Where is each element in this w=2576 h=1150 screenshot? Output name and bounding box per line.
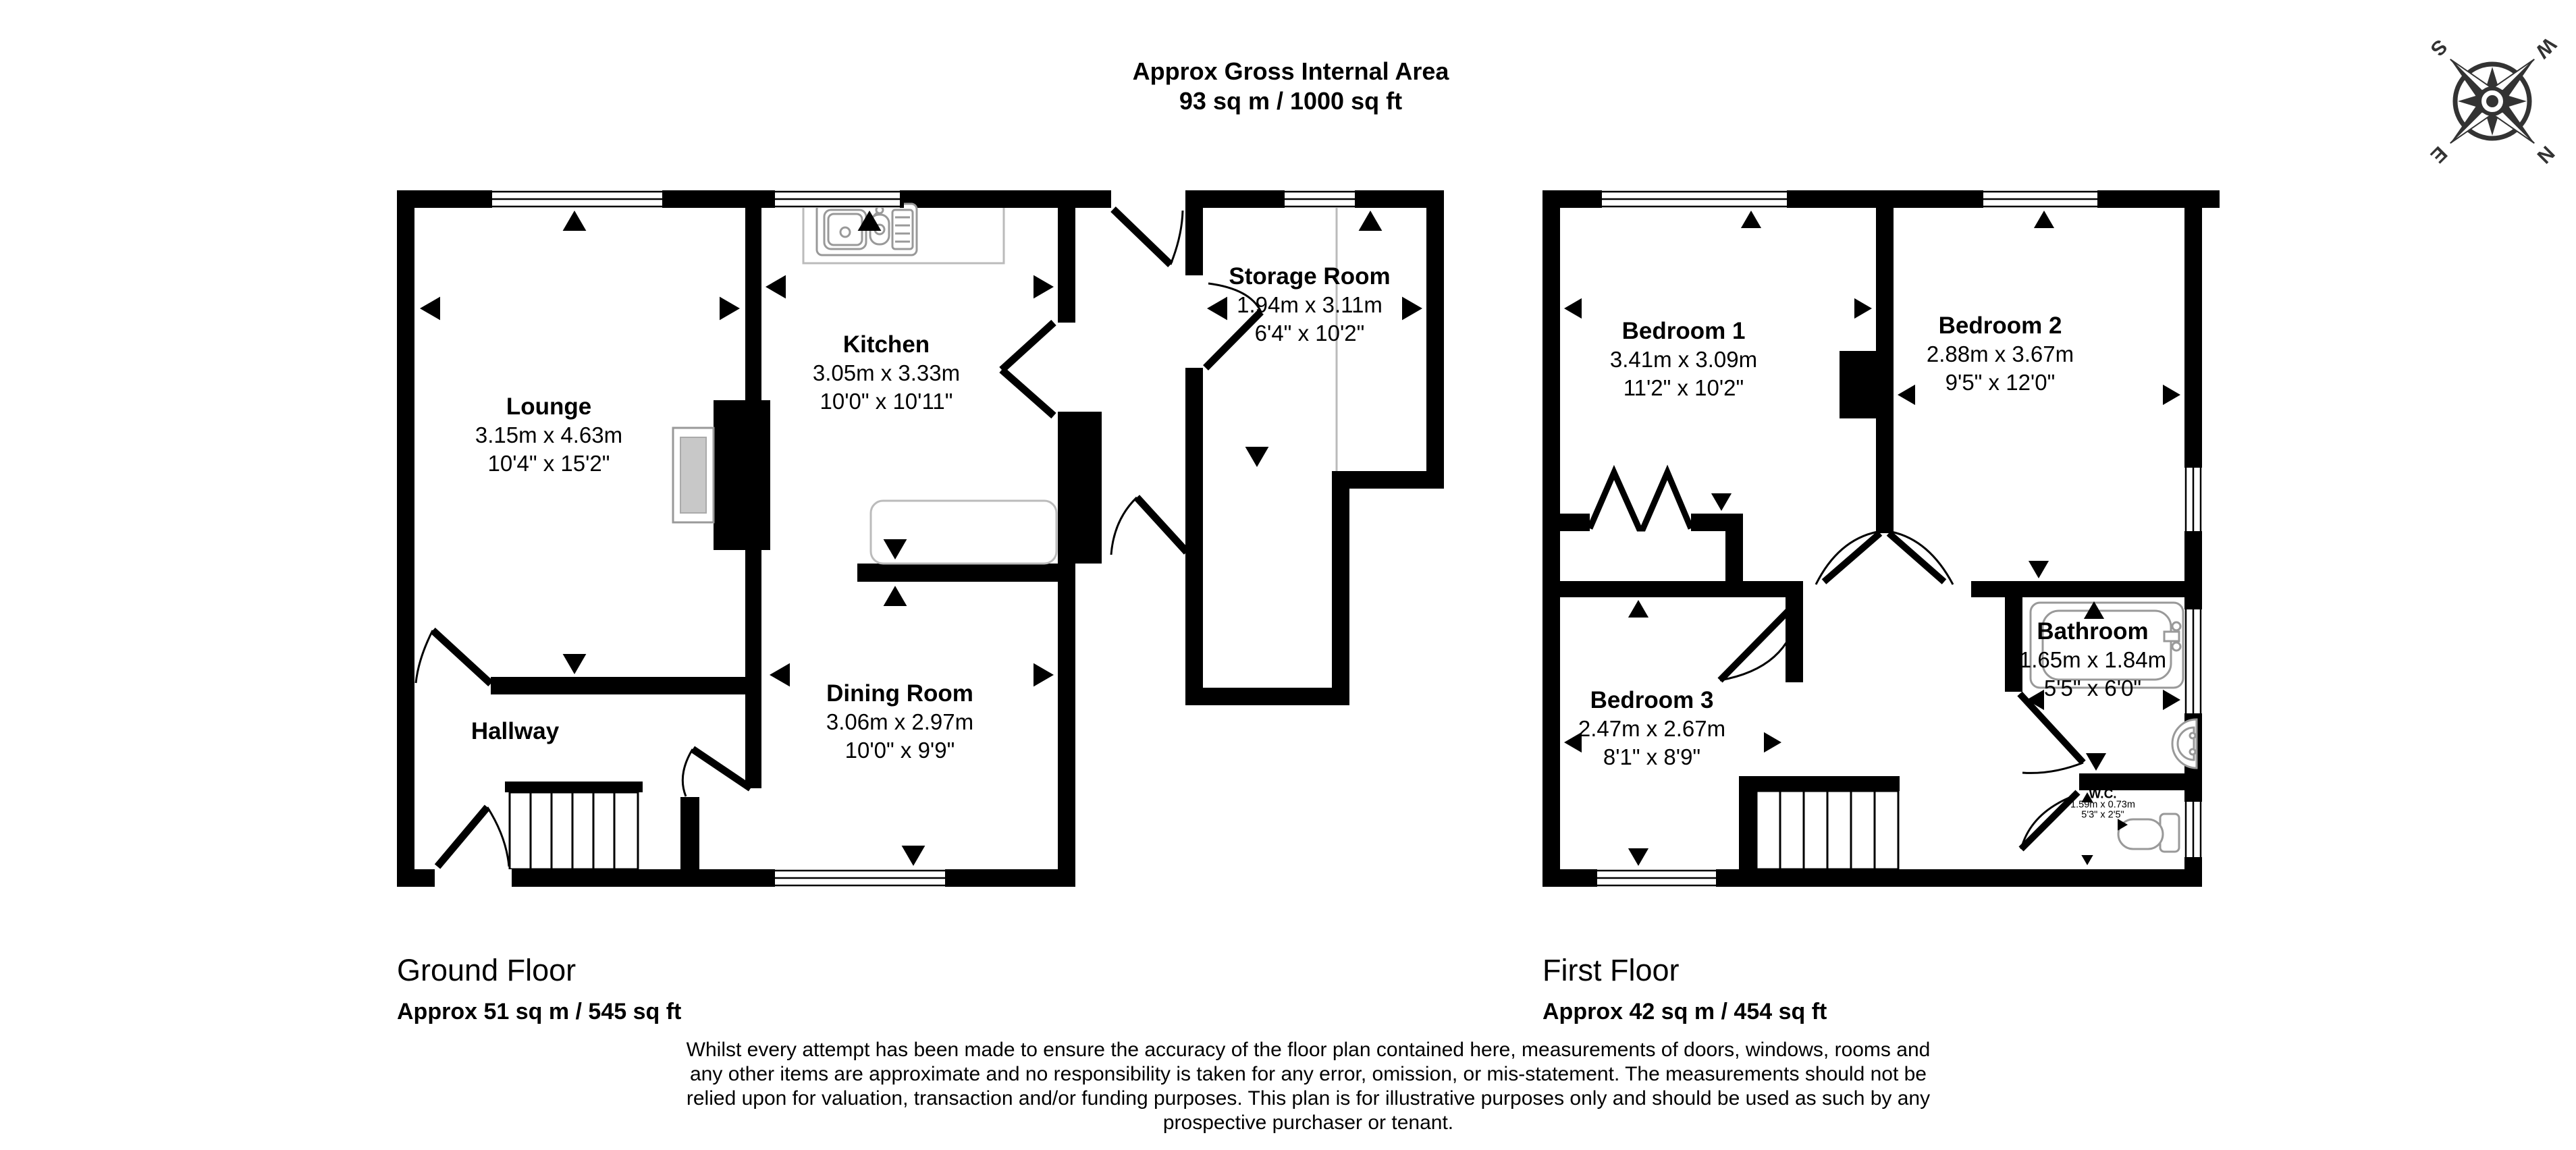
direction-arrow — [766, 275, 786, 299]
washbasin-icon — [2172, 719, 2197, 768]
wall — [1058, 564, 1075, 869]
compass-n-label: N — [2533, 142, 2559, 168]
direction-arrow — [2034, 211, 2054, 228]
door-wc — [2021, 792, 2078, 849]
window — [2184, 464, 2202, 468]
room-label-bedroom3: Bedroom 3 2.47m x 2.67m 8'1" x 8'9" — [1578, 686, 1725, 771]
door-porch-top — [1113, 209, 1183, 265]
compass-w-label: W — [2531, 33, 2560, 63]
wall — [1971, 581, 2202, 597]
window — [1593, 869, 1597, 887]
direction-arrow — [1741, 211, 1761, 228]
direction-arrow — [1854, 298, 1872, 319]
door-dining — [682, 749, 751, 796]
first-floor-plan — [1542, 190, 2220, 887]
wall — [745, 550, 761, 677]
window — [488, 190, 492, 208]
first-floor-title: First Floor — [1542, 953, 1827, 988]
direction-arrow — [1245, 447, 1269, 467]
door-bedroom1 — [1816, 532, 1880, 584]
compass-s-label: S — [2426, 35, 2451, 60]
direction-arrow — [720, 297, 740, 321]
direction-arrow — [2029, 561, 2049, 578]
room-label-bathroom: Bathroom 1.65m x 1.84m 5'5" x 6'0" — [2019, 618, 2166, 703]
room-label-bedroom1: Bedroom 1 3.41m x 3.09m 11'2" x 10'2" — [1610, 317, 1757, 402]
compass-icon: N E S W — [2373, 0, 2576, 221]
wall — [1185, 208, 1203, 275]
direction-arrow — [563, 211, 587, 231]
direction-arrow — [1898, 385, 1915, 405]
wall — [1748, 776, 1900, 791]
wall — [1542, 190, 1560, 887]
direction-arrow — [1359, 211, 1383, 231]
direction-arrow — [1764, 732, 1781, 752]
gross-area-value: 93 sq m / 1000 sq ft — [1133, 86, 1449, 116]
window — [1716, 869, 1720, 887]
compass-e-label: E — [2426, 142, 2451, 167]
wall — [857, 564, 1058, 582]
door-lobby-dining — [1111, 497, 1187, 555]
window — [945, 869, 949, 887]
direction-arrow — [1207, 297, 1227, 321]
door-bedroom2 — [1889, 532, 1953, 584]
floorplan-page: { "header": { "title": "Approx Gross Int… — [0, 0, 2576, 1150]
ground-floor-caption: Ground Floor Approx 51 sq m / 545 sq ft — [397, 953, 681, 1025]
window — [1979, 190, 1983, 208]
direction-arrow — [563, 654, 587, 674]
window — [662, 190, 666, 208]
wall — [1426, 190, 1444, 489]
direction-arrow — [902, 846, 925, 866]
wall — [1876, 208, 1894, 533]
wall — [745, 208, 761, 400]
direction-arrow — [1034, 275, 1054, 299]
direction-arrow — [1628, 848, 1648, 866]
direction-arrow — [2086, 753, 2106, 771]
gross-area-title: Approx Gross Internal Area — [1133, 57, 1449, 86]
direction-arrow — [1402, 297, 1422, 321]
direction-arrow — [770, 663, 790, 687]
fireplace-icon — [673, 428, 714, 522]
wall — [1560, 514, 1590, 531]
disclaimer-text: Whilst every attempt has been made to en… — [687, 1038, 1931, 1135]
window — [2184, 713, 2202, 717]
window — [2184, 798, 2202, 802]
room-label-lounge: Lounge 3.15m x 4.63m 10'4" x 15'2" — [475, 393, 622, 478]
wall — [680, 797, 699, 869]
window — [1355, 190, 1359, 208]
window — [2184, 857, 2202, 861]
window — [771, 190, 775, 208]
window — [2184, 531, 2202, 535]
room-label-wc: W.C. 1.59m x 0.73m 5'3" x 2'5" — [2070, 789, 2135, 821]
ground-floor-area: Approx 51 sq m / 545 sq ft — [397, 999, 681, 1025]
first-floor-caption: First Floor Approx 42 sq m / 454 sq ft — [1542, 953, 1827, 1025]
stairs-first — [1756, 791, 1898, 869]
direction-arrow — [884, 586, 907, 606]
first-floor-area: Approx 42 sq m / 454 sq ft — [1542, 999, 1827, 1025]
room-label-storage: Storage Room 1.94m x 3.11m 6'4" x 10'2" — [1229, 263, 1390, 348]
wall — [1739, 776, 1756, 887]
room-label-bedroom2: Bedroom 2 2.88m x 3.67m 9'5" x 12'0" — [1927, 312, 2074, 397]
window — [771, 869, 775, 887]
wall — [1332, 471, 1444, 489]
direction-arrow — [2163, 385, 2180, 405]
door-bathroom — [2020, 694, 2083, 773]
door-lounge — [416, 630, 491, 684]
wall — [1185, 688, 1349, 705]
window — [2097, 190, 2101, 208]
window — [1598, 190, 1602, 208]
door-front — [435, 807, 512, 887]
direction-arrow — [1034, 663, 1054, 687]
direction-arrow — [2081, 855, 2093, 865]
kitchen-counter — [871, 501, 1056, 564]
floorplan-drawing: N E S W — [0, 0, 2576, 1150]
wardrobe-doors — [1590, 472, 1691, 528]
wall — [491, 677, 761, 694]
wall — [1058, 412, 1102, 564]
window — [900, 190, 904, 208]
wall — [1185, 368, 1203, 688]
chimney-breast — [1840, 351, 1876, 418]
window — [1787, 190, 1791, 208]
door-kitchen-double — [1002, 323, 1054, 416]
room-label-hallway: Hallway — [471, 718, 559, 745]
wall — [1332, 489, 1349, 688]
room-label-dining: Dining Room 3.06m x 2.97m 10'0" x 9'9" — [826, 680, 973, 765]
direction-arrow — [1711, 493, 1732, 511]
room-label-kitchen: Kitchen 3.05m x 3.33m 10'0" x 10'11" — [813, 331, 960, 416]
stairs-ground — [505, 782, 643, 869]
chimney-breast — [714, 400, 770, 550]
direction-arrow — [420, 297, 440, 321]
wall — [397, 190, 414, 887]
ground-floor-title: Ground Floor — [397, 953, 681, 988]
gross-area-header: Approx Gross Internal Area 93 sq m / 100… — [1133, 57, 1449, 116]
window — [1281, 190, 1285, 208]
window — [2184, 605, 2202, 609]
direction-arrow — [1564, 298, 1582, 319]
direction-arrow — [1628, 600, 1648, 618]
wall — [1058, 190, 1075, 323]
wall — [1560, 581, 1803, 597]
